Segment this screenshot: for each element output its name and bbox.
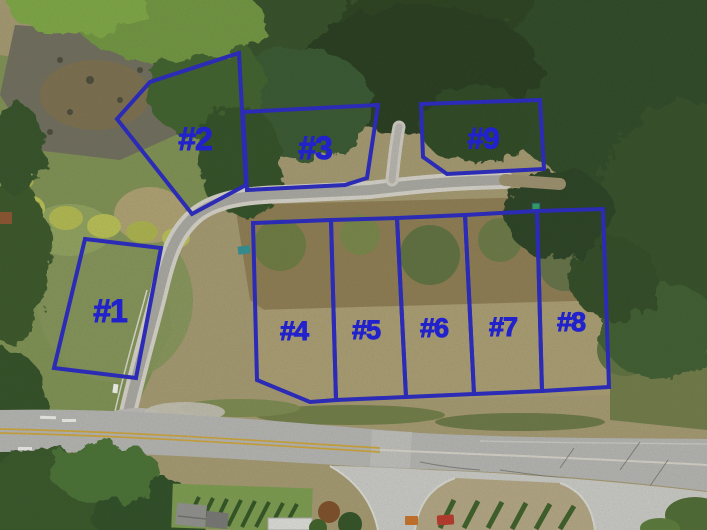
- orange-machine: [405, 516, 418, 525]
- lot-label-1: #1: [93, 293, 127, 329]
- shed-roof: [0, 212, 12, 224]
- house-roof: [175, 502, 207, 527]
- teal-tarp: [238, 245, 251, 255]
- white-building-roof: [268, 518, 312, 530]
- aerial-photo: #1#2#3#4#5#6#7#8#9: [0, 0, 707, 530]
- lot-label-6: #6: [420, 313, 449, 343]
- aerial-photo-canvas: #1#2#3#4#5#6#7#8#9: [0, 0, 707, 530]
- house-roof-2: [205, 511, 229, 529]
- lot-label-9: #9: [467, 123, 499, 156]
- red-car: [437, 514, 455, 525]
- lot-label-2: #2: [178, 121, 212, 157]
- lot-label-3: #3: [298, 130, 332, 166]
- terrain: [0, 0, 707, 530]
- lot-label-8: #8: [557, 307, 586, 337]
- lot-label-7: #7: [489, 312, 517, 342]
- lot-label-5: #5: [352, 315, 381, 345]
- lot-label-4: #4: [280, 316, 309, 346]
